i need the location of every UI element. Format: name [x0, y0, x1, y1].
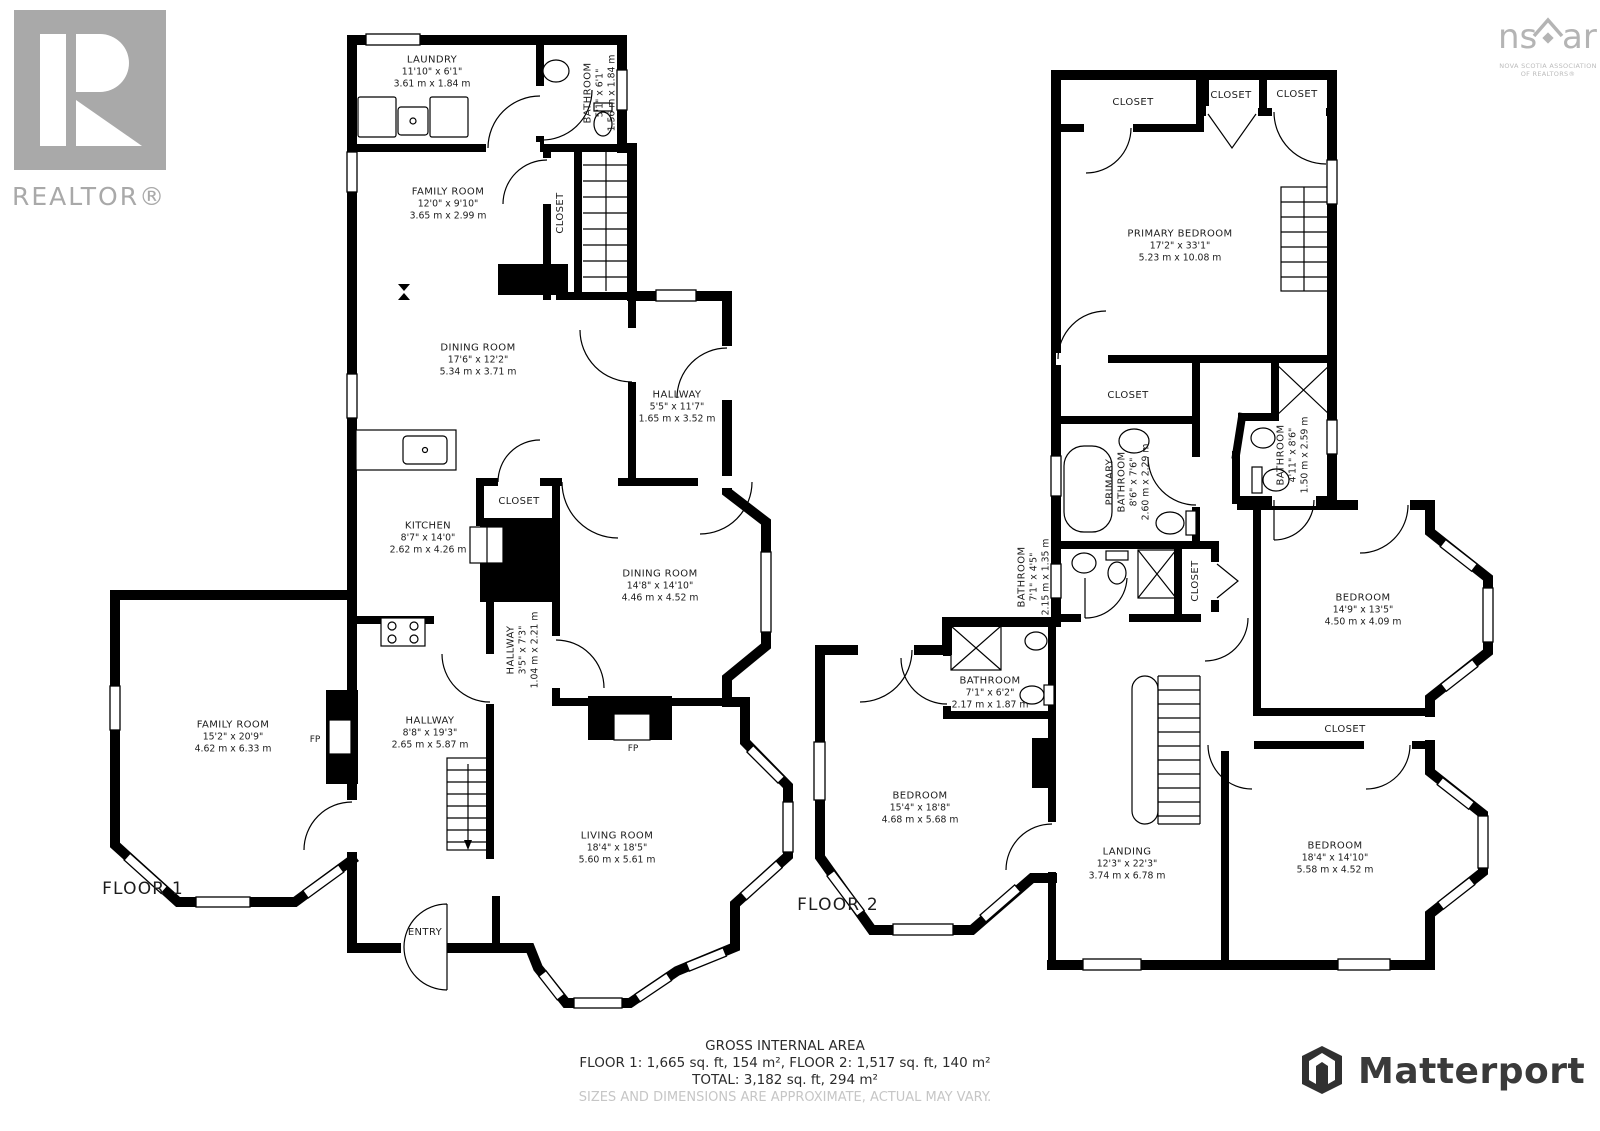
room-label-family-room-large: FAMILY ROOM 15'2" x 20'9" 4.62 m x 6.33 … — [195, 720, 272, 755]
room-dims-metric: 1.56 m x 1.84 m — [606, 55, 617, 132]
room-name: BATHROOM — [1276, 417, 1288, 494]
room-dims-imperial: 17'2" x 33'1" — [1127, 241, 1232, 252]
room-dims-metric: 2.15 m x 1.35 m — [1040, 539, 1051, 616]
room-dims-imperial: 7'1" x 6'2" — [952, 688, 1029, 699]
room-label-bathroom-f1: BATHROOM 5'1" x 6'1" 1.56 m x 1.84 m — [583, 55, 618, 132]
room-label-dining-room-2: DINING ROOM 14'8" x 14'10" 4.46 m x 4.52… — [622, 569, 699, 604]
matterport-wordmark: Matterport — [1358, 1051, 1585, 1092]
room-dims-imperial: 12'3" x 22'3" — [1089, 859, 1166, 870]
room-name: CLOSET — [1324, 724, 1365, 736]
total-area-line: TOTAL: 3,182 sq. ft, 294 m² — [579, 1072, 992, 1089]
room-dims-imperial: 17'6" x 12'2" — [440, 355, 517, 366]
room-dims-metric: 2.62 m x 4.26 m — [390, 544, 467, 555]
room-name: CLOSET — [1276, 89, 1317, 101]
room-name: KITCHEN — [390, 521, 467, 533]
room-name: BATHROOM — [1017, 539, 1029, 616]
room-name: CLOSET — [1112, 97, 1153, 109]
floor1-title: FLOOR 1 — [102, 879, 184, 899]
room-dims-imperial: 18'4" x 18'5" — [579, 843, 656, 854]
room-dims-metric: 4.68 m x 5.68 m — [882, 814, 959, 825]
room-label-closet-stairs: CLOSET — [555, 192, 567, 233]
room-name: HALLWAY — [639, 390, 716, 402]
room-dims-imperial: 8'7" x 14'0" — [390, 533, 467, 544]
room-dims-imperial: 15'4" x 18'8" — [882, 803, 959, 814]
gross-area-title: GROSS INTERNAL AREA — [579, 1038, 992, 1055]
room-dims-metric: 3.61 m x 1.84 m — [394, 78, 471, 89]
room-label-hallway-main: HALLWAY 8'8" x 19'3" 2.65 m x 5.87 m — [392, 716, 469, 751]
fireplace-label-family: FP — [310, 735, 321, 745]
room-name: PRIMARY — [1104, 444, 1116, 521]
room-dims-metric: 4.62 m x 6.33 m — [195, 743, 272, 754]
svg-text:ns: ns — [1498, 17, 1537, 57]
room-label-kitchen: KITCHEN 8'7" x 14'0" 2.62 m x 4.26 m — [390, 521, 467, 556]
floor2-walls — [814, 75, 1493, 970]
room-dims-metric: 2.65 m x 5.87 m — [392, 739, 469, 750]
room-dims-imperial: 7'1" x 4'5" — [1029, 539, 1040, 616]
room-label-closet-top-2: CLOSET — [1210, 90, 1251, 102]
room-name: BATHROOM — [583, 55, 595, 132]
room-dims-metric: 4.46 m x 4.52 m — [622, 592, 699, 603]
room-label-closet-bedroom: CLOSET — [1324, 724, 1365, 736]
room-label-bedroom-right: BEDROOM 14'9" x 13'5" 4.50 m x 4.09 m — [1325, 593, 1402, 628]
room-label-bathroom-center: BATHROOM 7'1" x 6'2" 2.17 m x 1.87 m — [952, 676, 1029, 711]
room-label-bedroom-bottom: BEDROOM 18'4" x 14'10" 5.58 m x 4.52 m — [1297, 841, 1374, 876]
realtor-r-icon — [12, 8, 182, 174]
nsar-caption-line1: NOVA SCOTIA ASSOCIATION — [1496, 62, 1600, 70]
realtor-wordmark: REALTOR® — [12, 182, 182, 211]
room-name: FAMILY ROOM — [195, 720, 272, 732]
room-dims-imperial: 11'10" x 6'1" — [394, 67, 471, 78]
room-name: BEDROOM — [1297, 841, 1374, 853]
room-dims-metric: 2.17 m x 1.87 m — [952, 699, 1029, 710]
svg-text:ar: ar — [1562, 17, 1597, 57]
room-dims-metric: 3.74 m x 6.78 m — [1089, 870, 1166, 881]
room-label-laundry: LAUNDRY 11'10" x 6'1" 3.61 m x 1.84 m — [394, 55, 471, 90]
floor-areas-line: FLOOR 1: 1,665 sq. ft, 154 m², FLOOR 2: … — [579, 1055, 992, 1072]
room-dims-imperial: 15'2" x 20'9" — [195, 732, 272, 743]
room-dims-metric: 5.58 m x 4.52 m — [1297, 864, 1374, 875]
room-dims-imperial: 8'8" x 19'3" — [392, 728, 469, 739]
room-dims-imperial: 4'11" x 8'6" — [1288, 417, 1299, 494]
room-name: DINING ROOM — [440, 343, 517, 355]
room-dims-imperial: 8'6" x 7'6" — [1129, 444, 1140, 521]
room-name: BEDROOM — [882, 791, 959, 803]
room-dims-metric: 4.50 m x 4.09 m — [1325, 616, 1402, 627]
nsar-caption-line2: OF REALTORS® — [1496, 70, 1600, 78]
floor2-title: FLOOR 2 — [797, 895, 879, 915]
room-name: DINING ROOM — [622, 569, 699, 581]
room-name: CLOSET — [1107, 390, 1148, 402]
room-name: CLOSET — [498, 496, 539, 508]
room-label-closet-kitchen: CLOSET — [498, 496, 539, 508]
realtor-logo: REALTOR® — [12, 8, 182, 211]
room-dims-imperial: 14'8" x 14'10" — [622, 581, 699, 592]
nsar-logo: ns ar NOVA SCOTIA ASSOCIATION OF REALTOR… — [1496, 12, 1600, 78]
room-name: HALLWAY — [392, 716, 469, 728]
room-label-hallway-small: HALLWAY 3'5" x 7'3" 1.04 m x 2.21 m — [506, 612, 541, 689]
area-summary: GROSS INTERNAL AREA FLOOR 1: 1,665 sq. f… — [579, 1038, 992, 1106]
room-name: CLOSET — [555, 192, 567, 233]
room-dims-imperial: 5'1" x 6'1" — [595, 55, 606, 132]
room-name: HALLWAY — [506, 612, 518, 689]
fireplace-label-living: FP — [628, 744, 639, 754]
room-name: CLOSET — [1210, 90, 1251, 102]
floorplan-page: LAUNDRY 11'10" x 6'1" 3.61 m x 1.84 m BA… — [0, 0, 1600, 1131]
room-dims-metric: 5.34 m x 3.71 m — [440, 366, 517, 377]
room-name: LIVING ROOM — [579, 831, 656, 843]
room-label-hallway-upper: HALLWAY 5'5" x 11'7" 1.65 m x 3.52 m — [639, 390, 716, 425]
room-name: BATHROOM — [952, 676, 1029, 688]
room-dims-imperial: 5'5" x 11'7" — [639, 402, 716, 413]
room-label-primary-bedroom: PRIMARY BEDROOM 17'2" x 33'1" 5.23 m x 1… — [1127, 229, 1232, 264]
room-dims-metric: 3.65 m x 2.99 m — [410, 210, 487, 221]
room-name: LAUNDRY — [394, 55, 471, 67]
matterport-logo: Matterport — [1298, 1044, 1585, 1098]
room-name: LANDING — [1089, 847, 1166, 859]
room-label-closet-top-1: CLOSET — [1112, 97, 1153, 109]
room-dims-imperial: 12'0" x 9'10" — [410, 199, 487, 210]
room-label-bathroom-small: BATHROOM 7'1" x 4'5" 2.15 m x 1.35 m — [1017, 539, 1052, 616]
floorplan-drawing — [0, 0, 1600, 1131]
room-name: BEDROOM — [1325, 593, 1402, 605]
room-name: CLOSET — [1190, 560, 1202, 601]
room-label-family-room-small: FAMILY ROOM 12'0" x 9'10" 3.65 m x 2.99 … — [410, 187, 487, 222]
room-label-bedroom-left: BEDROOM 15'4" x 18'8" 4.68 m x 5.68 m — [882, 791, 959, 826]
room-dims-imperial: 14'9" x 13'5" — [1325, 605, 1402, 616]
room-name: FAMILY ROOM — [410, 187, 487, 199]
room-name: PRIMARY BEDROOM — [1127, 229, 1232, 241]
room-name: ENTRY — [408, 927, 442, 939]
room-label-landing: LANDING 12'3" x 22'3" 3.74 m x 6.78 m — [1089, 847, 1166, 882]
room-label-closet-mid: CLOSET — [1107, 390, 1148, 402]
room-dims-metric: 2.60 m x 2.29 m — [1140, 444, 1151, 521]
room-label-bathroom-ensuite: BATHROOM 4'11" x 8'6" 1.50 m x 2.59 m — [1276, 417, 1311, 494]
disclaimer-line: SIZES AND DIMENSIONS ARE APPROXIMATE, AC… — [579, 1089, 992, 1106]
room-label-closet-top-3: CLOSET — [1276, 89, 1317, 101]
room-dims-imperial: 18'4" x 14'10" — [1297, 853, 1374, 864]
room-dims-metric: 5.23 m x 10.08 m — [1127, 252, 1232, 263]
room-dims-metric: 1.65 m x 3.52 m — [639, 413, 716, 424]
matterport-cube-icon — [1298, 1044, 1348, 1098]
room-dims-metric: 1.04 m x 2.21 m — [529, 612, 540, 689]
room-label-dining-room-1: DINING ROOM 17'6" x 12'2" 5.34 m x 3.71 … — [440, 343, 517, 378]
room-label-entry: ENTRY — [408, 927, 442, 939]
room-name: BATHROOM — [1117, 444, 1129, 521]
room-label-closet-hall: CLOSET — [1190, 560, 1202, 601]
room-dims-metric: 1.50 m x 2.59 m — [1299, 417, 1310, 494]
room-label-living-room: LIVING ROOM 18'4" x 18'5" 5.60 m x 5.61 … — [579, 831, 656, 866]
room-dims-imperial: 3'5" x 7'3" — [518, 612, 529, 689]
nsar-wordmark-icon: ns ar — [1496, 12, 1600, 58]
room-dims-metric: 5.60 m x 5.61 m — [579, 854, 656, 865]
room-label-primary-bathroom: PRIMARY BATHROOM 8'6" x 7'6" 2.60 m x 2.… — [1104, 444, 1151, 521]
